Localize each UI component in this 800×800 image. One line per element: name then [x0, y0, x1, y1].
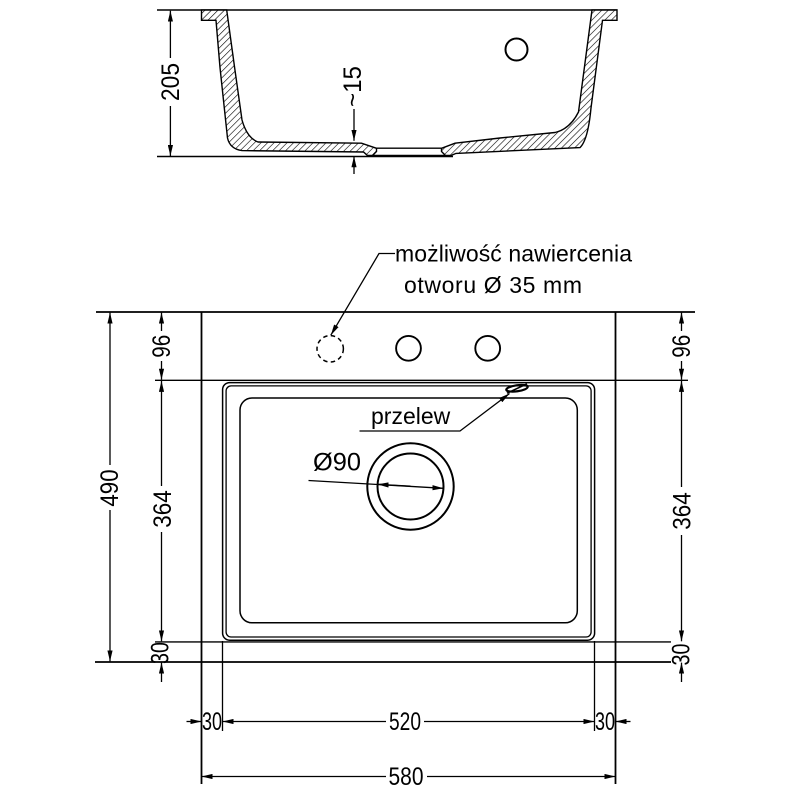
svg-text:30: 30 — [595, 708, 615, 736]
svg-text:Ø90: Ø90 — [313, 449, 361, 477]
svg-text:520: 520 — [389, 708, 421, 736]
svg-text:96: 96 — [668, 335, 696, 358]
svg-text:przelew: przelew — [371, 403, 451, 429]
svg-text:możliwość nawiercenia: możliwość nawiercenia — [395, 241, 632, 267]
svg-text:30: 30 — [202, 708, 222, 736]
svg-text:~15: ~15 — [339, 66, 367, 107]
svg-text:30: 30 — [667, 644, 695, 666]
svg-text:364: 364 — [668, 492, 696, 530]
svg-text:364: 364 — [149, 490, 177, 528]
svg-text:96: 96 — [148, 335, 176, 358]
svg-text:580: 580 — [389, 763, 424, 791]
svg-text:490: 490 — [96, 469, 124, 506]
svg-text:30: 30 — [147, 642, 175, 664]
svg-text:otworu Ø 35 mm: otworu Ø 35 mm — [404, 272, 582, 298]
svg-text:205: 205 — [157, 63, 185, 101]
